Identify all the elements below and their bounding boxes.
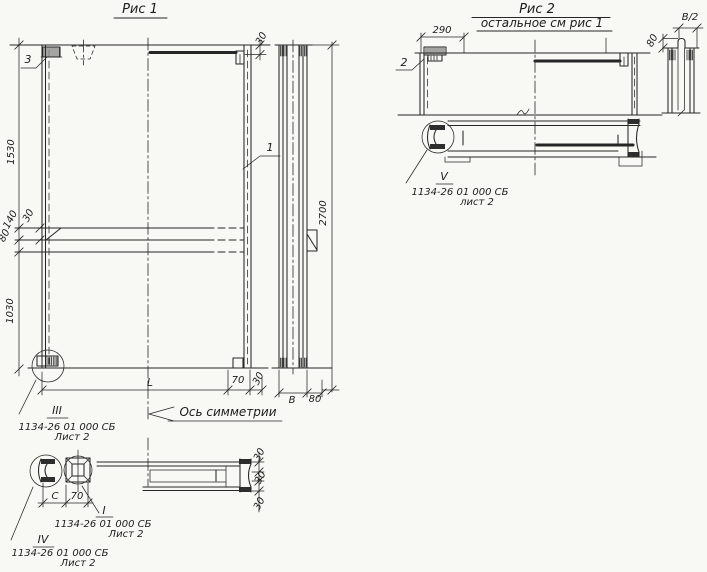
- fig2-section-view: [422, 119, 656, 166]
- dim-30-c: 30: [252, 496, 268, 512]
- fig1-detail-i: I 1134-26 01 000 СБ Лист 2: [55, 486, 152, 540]
- drawing-sheet: Рис 1 1: [0, 0, 707, 572]
- dim-80-side-bottom: 80: [309, 394, 322, 405]
- fig1-plan-view: [10, 38, 270, 420]
- dim-L: L: [147, 376, 153, 389]
- fig2-detail-v: V 1134-26 01 000 СБ лист 2: [406, 150, 509, 208]
- fig2-profile-dims: 80 В/2: [645, 12, 703, 52]
- dim-30-chamfer: 30: [21, 208, 37, 224]
- detail-v-mark: V: [440, 170, 449, 183]
- callout-2-text: 2: [401, 56, 408, 69]
- fig1-title-text: Рис 1: [122, 2, 158, 17]
- fig2-title-text: Рис 2: [519, 2, 555, 17]
- fig1-title: Рис 1: [114, 2, 167, 18]
- detail-v-sheet: лист 2: [459, 197, 494, 208]
- fig1-embed-plate-top: [41, 47, 62, 57]
- detail-i-sheet: Лист 2: [108, 529, 144, 540]
- fig2-profile-view: [662, 39, 700, 117]
- fig1-section-view: [30, 438, 251, 492]
- fig1-dim-left-chain: 1530 140 80 1030 30: [0, 38, 44, 376]
- detail-iii-mark: III: [52, 404, 62, 417]
- fig2-title: Рис 2 остальное см рис 1: [472, 2, 612, 31]
- dim-B: В: [289, 395, 296, 406]
- dim-C: С: [52, 491, 59, 502]
- fig1-dim-bottom: L 70 30: [38, 370, 267, 395]
- fig1-section-dims-right: 30 30 30: [252, 447, 269, 512]
- technical-drawing: Рис 1 1: [0, 0, 707, 572]
- detail-iv-sheet: Лист 2: [60, 558, 96, 569]
- fig2-subtitle-text: остальное см рис 1: [481, 16, 603, 30]
- dim-30-a: 30: [252, 447, 268, 463]
- dim-1030: 1030: [5, 298, 16, 323]
- axis-of-symmetry-label: Ось симметрии: [179, 405, 276, 419]
- detail-i-mark: I: [102, 504, 105, 517]
- dim-70-section: 70: [71, 491, 84, 502]
- detail-iii-sheet: Лист 2: [54, 432, 90, 443]
- fig1-corner-detail-circle: [32, 350, 64, 382]
- dim-80-profile: 80: [645, 33, 661, 49]
- dim-290: 290: [432, 25, 451, 36]
- dim-2700: 2700: [318, 200, 329, 225]
- fig1-dim-side-bottom: В 80: [275, 370, 326, 406]
- dim-B-half: В/2: [682, 12, 699, 23]
- dim-70: 70: [232, 375, 245, 386]
- fig1-dim-2700: 2700: [312, 41, 339, 394]
- callout-3-text: 3: [25, 53, 32, 66]
- fig1-callout-1: 1: [243, 141, 280, 169]
- fig1-axis-label: Ось симметрии: [149, 405, 282, 421]
- dim-1530: 1530: [6, 139, 17, 164]
- fig1-detail-iii: III 1134-26 01 000 СБ Лист 2: [19, 380, 116, 443]
- callout-1-text: 1: [267, 141, 274, 154]
- detail-iv-mark: IV: [38, 533, 50, 546]
- dim-30-bottom: 30: [251, 371, 267, 387]
